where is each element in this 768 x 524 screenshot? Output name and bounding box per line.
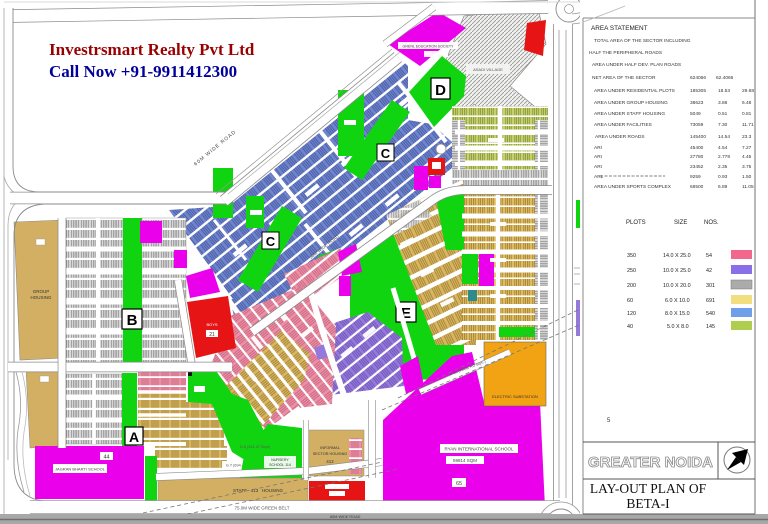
- svg-text:6.48: 6.48: [742, 100, 752, 106]
- svg-text:4.54: 4.54: [718, 145, 728, 151]
- svg-text:145: 145: [706, 324, 715, 330]
- svg-text:JAGRAN BHARTI SCHOOL: JAGRAN BHARTI SCHOOL: [55, 467, 106, 472]
- svg-text:AREA UNDER RESIDENTIAL PLOTS: AREA UNDER RESIDENTIAL PLOTS: [594, 88, 675, 94]
- svg-text:62.4066: 62.4066: [716, 75, 734, 81]
- svg-text:BOYS: BOYS: [206, 322, 217, 327]
- svg-text:10.0 X 20.0: 10.0 X 20.0: [663, 283, 691, 289]
- svg-text:ARI: ARI: [594, 154, 602, 160]
- svg-text:59814 SQM: 59814 SQM: [453, 458, 477, 463]
- svg-text:14.54: 14.54: [718, 134, 730, 140]
- svg-text:21: 21: [209, 332, 215, 338]
- svg-text:120: 120: [627, 311, 636, 317]
- svg-text:SECTOR HOUSING: SECTOR HOUSING: [313, 452, 348, 456]
- svg-text:6.0 X 10.0: 6.0 X 10.0: [665, 298, 690, 304]
- svg-text:0.93: 0.93: [718, 174, 728, 180]
- svg-text:23.3: 23.3: [742, 134, 752, 140]
- svg-text:65: 65: [456, 481, 462, 487]
- svg-text:27780: 27780: [690, 154, 704, 160]
- svg-text:9259: 9259: [690, 174, 701, 180]
- svg-text:250: 250: [627, 268, 636, 274]
- svg-text:ASADI VILLAGE: ASADI VILLAGE: [473, 67, 503, 72]
- svg-text:75.0M WIDE GREEN BELT: 75.0M WIDE GREEN BELT: [235, 506, 290, 511]
- svg-text:73059: 73059: [690, 122, 704, 128]
- svg-text:HALF THE PERIPHERAL ROADS: HALF THE PERIPHERAL ROADS: [589, 50, 662, 56]
- svg-text:8.0 X 15.0: 8.0 X 15.0: [665, 311, 690, 317]
- svg-text:ARL: ARL: [594, 174, 604, 180]
- svg-text:RYAN INTERNATIONAL SCHOOL: RYAN INTERNATIONAL SCHOOL: [444, 447, 514, 452]
- svg-text:301: 301: [706, 283, 715, 289]
- svg-text:3.86: 3.86: [718, 100, 728, 106]
- svg-text:AREA UNDER GROUP HOUSING: AREA UNDER GROUP HOUSING: [594, 100, 668, 106]
- svg-text:D: D: [435, 82, 446, 99]
- svg-text:11.71: 11.71: [742, 122, 754, 128]
- svg-text:TOTAL AREA OF THE SECTOR INCLU: TOTAL AREA OF THE SECTOR INCLUDING: [594, 38, 691, 44]
- svg-text:691: 691: [706, 298, 715, 304]
- svg-text:AREA UNDER SPORTS COMPLEX: AREA UNDER SPORTS COMPLEX: [594, 184, 672, 190]
- svg-text:200: 200: [627, 283, 636, 289]
- svg-text:0.81: 0.81: [742, 111, 752, 117]
- svg-text:38623: 38623: [690, 100, 704, 106]
- svg-text:NOS.: NOS.: [704, 220, 719, 226]
- svg-text:412: 412: [326, 459, 334, 464]
- svg-text:GROUP: GROUP: [33, 289, 50, 294]
- svg-text:45400: 45400: [690, 145, 704, 151]
- svg-text:540: 540: [706, 311, 715, 317]
- svg-text:AREA UNDER STAFF HOUSING: AREA UNDER STAFF HOUSING: [594, 111, 665, 117]
- svg-text:HOUSING: HOUSING: [30, 295, 52, 300]
- svg-text:SIZE: SIZE: [674, 220, 687, 226]
- svg-text:0.51: 0.51: [718, 111, 728, 117]
- svg-text:145400: 145400: [690, 134, 706, 140]
- svg-text:SCHOOL 114: SCHOOL 114: [269, 463, 291, 467]
- svg-text:AREA UNDER ROADS: AREA UNDER ROADS: [595, 134, 645, 140]
- svg-text:BETA-I: BETA-I: [626, 496, 670, 511]
- svg-text:NURSERY: NURSERY: [271, 458, 289, 462]
- svg-text:624066: 624066: [690, 75, 706, 81]
- svg-text:ARI: ARI: [594, 145, 602, 151]
- svg-text:AREA UNDER HALF DEV. PLAN ROAD: AREA UNDER HALF DEV. PLAN ROADS: [592, 62, 681, 68]
- svg-text:54: 54: [706, 253, 712, 259]
- svg-text:C: C: [381, 146, 391, 161]
- svg-text:7.27: 7.27: [742, 145, 752, 151]
- svg-text:2.35: 2.35: [718, 164, 728, 170]
- svg-text:350: 350: [627, 253, 636, 259]
- svg-text:1.50: 1.50: [742, 174, 752, 180]
- svg-text:68500: 68500: [690, 184, 704, 190]
- svg-text:4.45: 4.45: [742, 154, 752, 160]
- svg-text:60: 60: [627, 298, 633, 304]
- svg-text:5.0 X 8.0: 5.0 X 8.0: [667, 324, 689, 330]
- svg-text:7.30: 7.30: [718, 122, 728, 128]
- svg-text:C: C: [266, 234, 276, 249]
- svg-text:3.75: 3.75: [742, 164, 752, 170]
- svg-text:6.89: 6.89: [718, 184, 728, 190]
- svg-text:D-6 (451.37 Sqm): D-6 (451.37 Sqm): [240, 445, 271, 449]
- svg-text:PLOTS: PLOTS: [626, 220, 646, 226]
- svg-text:60M WIDE ROAD: 60M WIDE ROAD: [330, 515, 361, 519]
- svg-text:LAY-OUT PLAN OF: LAY-OUT PLAN OF: [590, 481, 707, 496]
- svg-text:ELECTRIC SUBSTATION: ELECTRIC SUBSTATION: [492, 394, 538, 399]
- svg-text:11.05: 11.05: [742, 184, 754, 190]
- svg-text:AREA UNDER FACILITIES: AREA UNDER FACILITIES: [594, 122, 652, 128]
- svg-text:44: 44: [103, 455, 109, 461]
- svg-text:AREA STATEMENT: AREA STATEMENT: [591, 25, 648, 32]
- svg-text:INFORMAL: INFORMAL: [320, 446, 340, 450]
- svg-text:GREATER NOIDA: GREATER NOIDA: [588, 454, 714, 471]
- svg-text:B: B: [127, 312, 138, 329]
- svg-text:185305: 185305: [690, 88, 706, 94]
- svg-text:40: 40: [627, 324, 633, 330]
- svg-text:14.0 X 25.0: 14.0 X 25.0: [663, 253, 691, 259]
- svg-text:29.68: 29.68: [742, 88, 754, 94]
- svg-text:ARI: ARI: [594, 164, 602, 170]
- svg-text:5049: 5049: [690, 111, 701, 117]
- svg-text:GRENL EDUCATION SOCIETY: GRENL EDUCATION SOCIETY: [403, 45, 455, 49]
- svg-text:42: 42: [706, 268, 712, 274]
- svg-text:23452: 23452: [690, 164, 704, 170]
- svg-text:10.0 X 25.0: 10.0 X 25.0: [663, 268, 691, 274]
- svg-text:NET AREA OF THE SECTOR: NET AREA OF THE SECTOR: [592, 75, 656, 81]
- svg-text:18.53: 18.53: [718, 88, 730, 94]
- svg-text:2.778: 2.778: [718, 154, 730, 160]
- svg-text:A: A: [129, 429, 139, 445]
